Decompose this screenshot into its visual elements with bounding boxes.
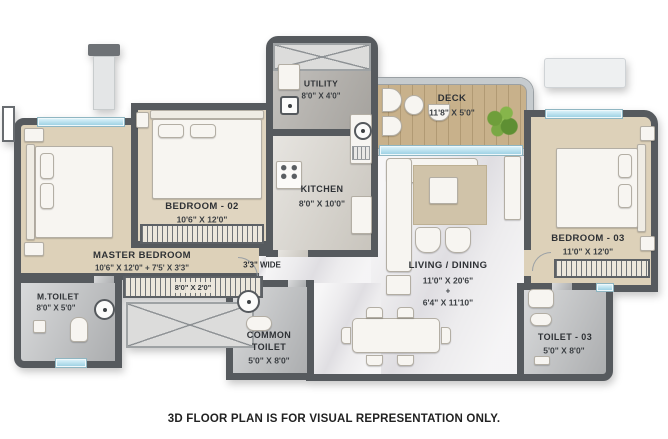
bedroom-03-wardrobe	[554, 259, 650, 278]
toilet-03-wc	[530, 313, 552, 326]
dining-chair	[366, 307, 383, 318]
master-wardrobe-dims-label: 8'0" X 2'0"	[172, 282, 215, 293]
dining-chair	[366, 355, 383, 366]
master-nightstand	[24, 242, 44, 256]
common-toilet-label-line1: COMMON	[247, 331, 291, 341]
toilet-03-window	[597, 284, 613, 291]
floor-plan: 8'0" X 2'0"	[0, 0, 668, 439]
exterior-ac-ledge	[2, 106, 15, 142]
bedroom-02-label: BEDROOM - 02	[165, 202, 238, 212]
master-bedroom-label: MASTER BEDROOM	[93, 251, 191, 261]
disclaimer-text: 3D FLOOR PLAN IS FOR VISUAL REPRESENTATI…	[168, 413, 501, 425]
m-toilet-room	[14, 276, 122, 368]
utility-dims-label: 8'0" X 4'0"	[302, 93, 341, 102]
m-toilet-wc	[70, 317, 88, 342]
deck-plant	[484, 104, 520, 140]
bedroom-03-label: BEDROOM - 03	[551, 234, 624, 244]
bedroom-02-nightstand	[136, 112, 149, 128]
armchair	[445, 227, 471, 253]
living-dining-label: LIVING / DINING	[409, 261, 488, 271]
common-toilet-washbasin	[237, 290, 260, 313]
master-bed-headboard	[26, 144, 35, 240]
toilet-03-dims-label: 5'0" X 8'0"	[543, 346, 584, 355]
bedroom-02-bed-headboard	[150, 110, 264, 119]
master-nightstand	[24, 128, 44, 142]
service-void	[126, 302, 254, 348]
m-toilet-washbasin	[94, 299, 115, 320]
exterior-column-cap	[88, 44, 120, 56]
master-bed-pillow	[40, 153, 54, 179]
bedroom-03-bed-headboard	[637, 144, 646, 232]
m-toilet-door-opening	[94, 276, 114, 283]
living-dining-dims2-label: 6'4" X 11'10"	[423, 298, 473, 307]
kitchen-opening	[278, 250, 308, 257]
bedroom-02-dims-label: 10'6" X 12'0"	[177, 215, 228, 224]
stove	[276, 161, 302, 189]
common-toilet-wc	[246, 316, 272, 331]
passage-width-label: 3'3" WIDE	[243, 262, 281, 271]
sofa-left	[386, 158, 412, 272]
master-bedroom-dims-label: 10'6" X 12'0" + 7'5' X 3'3"	[95, 265, 189, 274]
floor-plan-image: 8'0" X 2'0"	[0, 0, 668, 439]
utility-sink	[280, 96, 299, 115]
living-dining-dims1-label: 11'0" X 20'6"	[423, 276, 473, 285]
master-bedroom-window	[38, 118, 124, 126]
living-room-deck-window	[380, 146, 522, 155]
deck-label: DECK	[438, 94, 467, 104]
living-dining-plus-label: +	[446, 288, 451, 297]
toilet-03-door-opening	[552, 283, 572, 290]
common-toilet-door-opening	[288, 280, 306, 287]
bedroom-03-bed-pillow	[618, 184, 632, 208]
utility-label: UTILITY	[304, 79, 338, 88]
fridge	[351, 196, 372, 234]
common-toilet-label-line2: TOILET	[252, 343, 286, 353]
common-toilet-dims-label: 5'0" X 8'0"	[248, 356, 289, 365]
m-toilet-window	[56, 359, 86, 367]
bedroom-03-bed-pillow	[618, 154, 632, 178]
kitchen-sink	[354, 122, 372, 140]
bedroom-03-door-opening	[524, 250, 531, 276]
bedroom-03-nightstand	[640, 236, 655, 251]
kitchen-label: KITCHEN	[301, 185, 344, 195]
deck-chair	[382, 116, 402, 136]
m-toilet-label: M.TOILET	[37, 292, 79, 301]
armchair	[415, 227, 441, 253]
dining-chair	[397, 355, 414, 366]
deck-dims-label: 11'8" X 5'0"	[429, 108, 475, 117]
dining-table	[352, 318, 440, 353]
toilet-03-shower	[528, 289, 554, 308]
coffee-table	[429, 177, 458, 204]
dining-chair	[441, 327, 451, 344]
kitchen-drainboard	[352, 146, 370, 160]
dining-chair	[397, 307, 414, 318]
bedroom-03-dims-label: 11'0" X 12'0"	[563, 247, 613, 256]
deck-table	[404, 95, 424, 115]
m-toilet-dims-label: 8'0" X 5'0"	[37, 305, 76, 314]
bedroom-02-bed-pillow	[190, 124, 216, 138]
sofa-ottoman	[386, 275, 411, 295]
washing-machine	[278, 64, 300, 90]
tv-console	[504, 156, 521, 220]
bedroom-02-wardrobe	[140, 224, 264, 244]
toilet-03-label: TOILET - 03	[538, 333, 592, 343]
dining-chair	[341, 327, 351, 344]
m-toilet-sink	[33, 320, 46, 333]
toilet-03-sink	[534, 356, 550, 365]
bedroom-02-bed-pillow	[158, 124, 184, 138]
master-bed-pillow	[40, 183, 54, 209]
bedroom-03-window	[546, 110, 622, 118]
bedroom-03-nightstand	[640, 126, 655, 141]
kitchen-dims-label: 8'0" X 10'0"	[299, 199, 345, 208]
exterior-column	[93, 56, 115, 110]
exterior-ledge	[544, 58, 626, 88]
